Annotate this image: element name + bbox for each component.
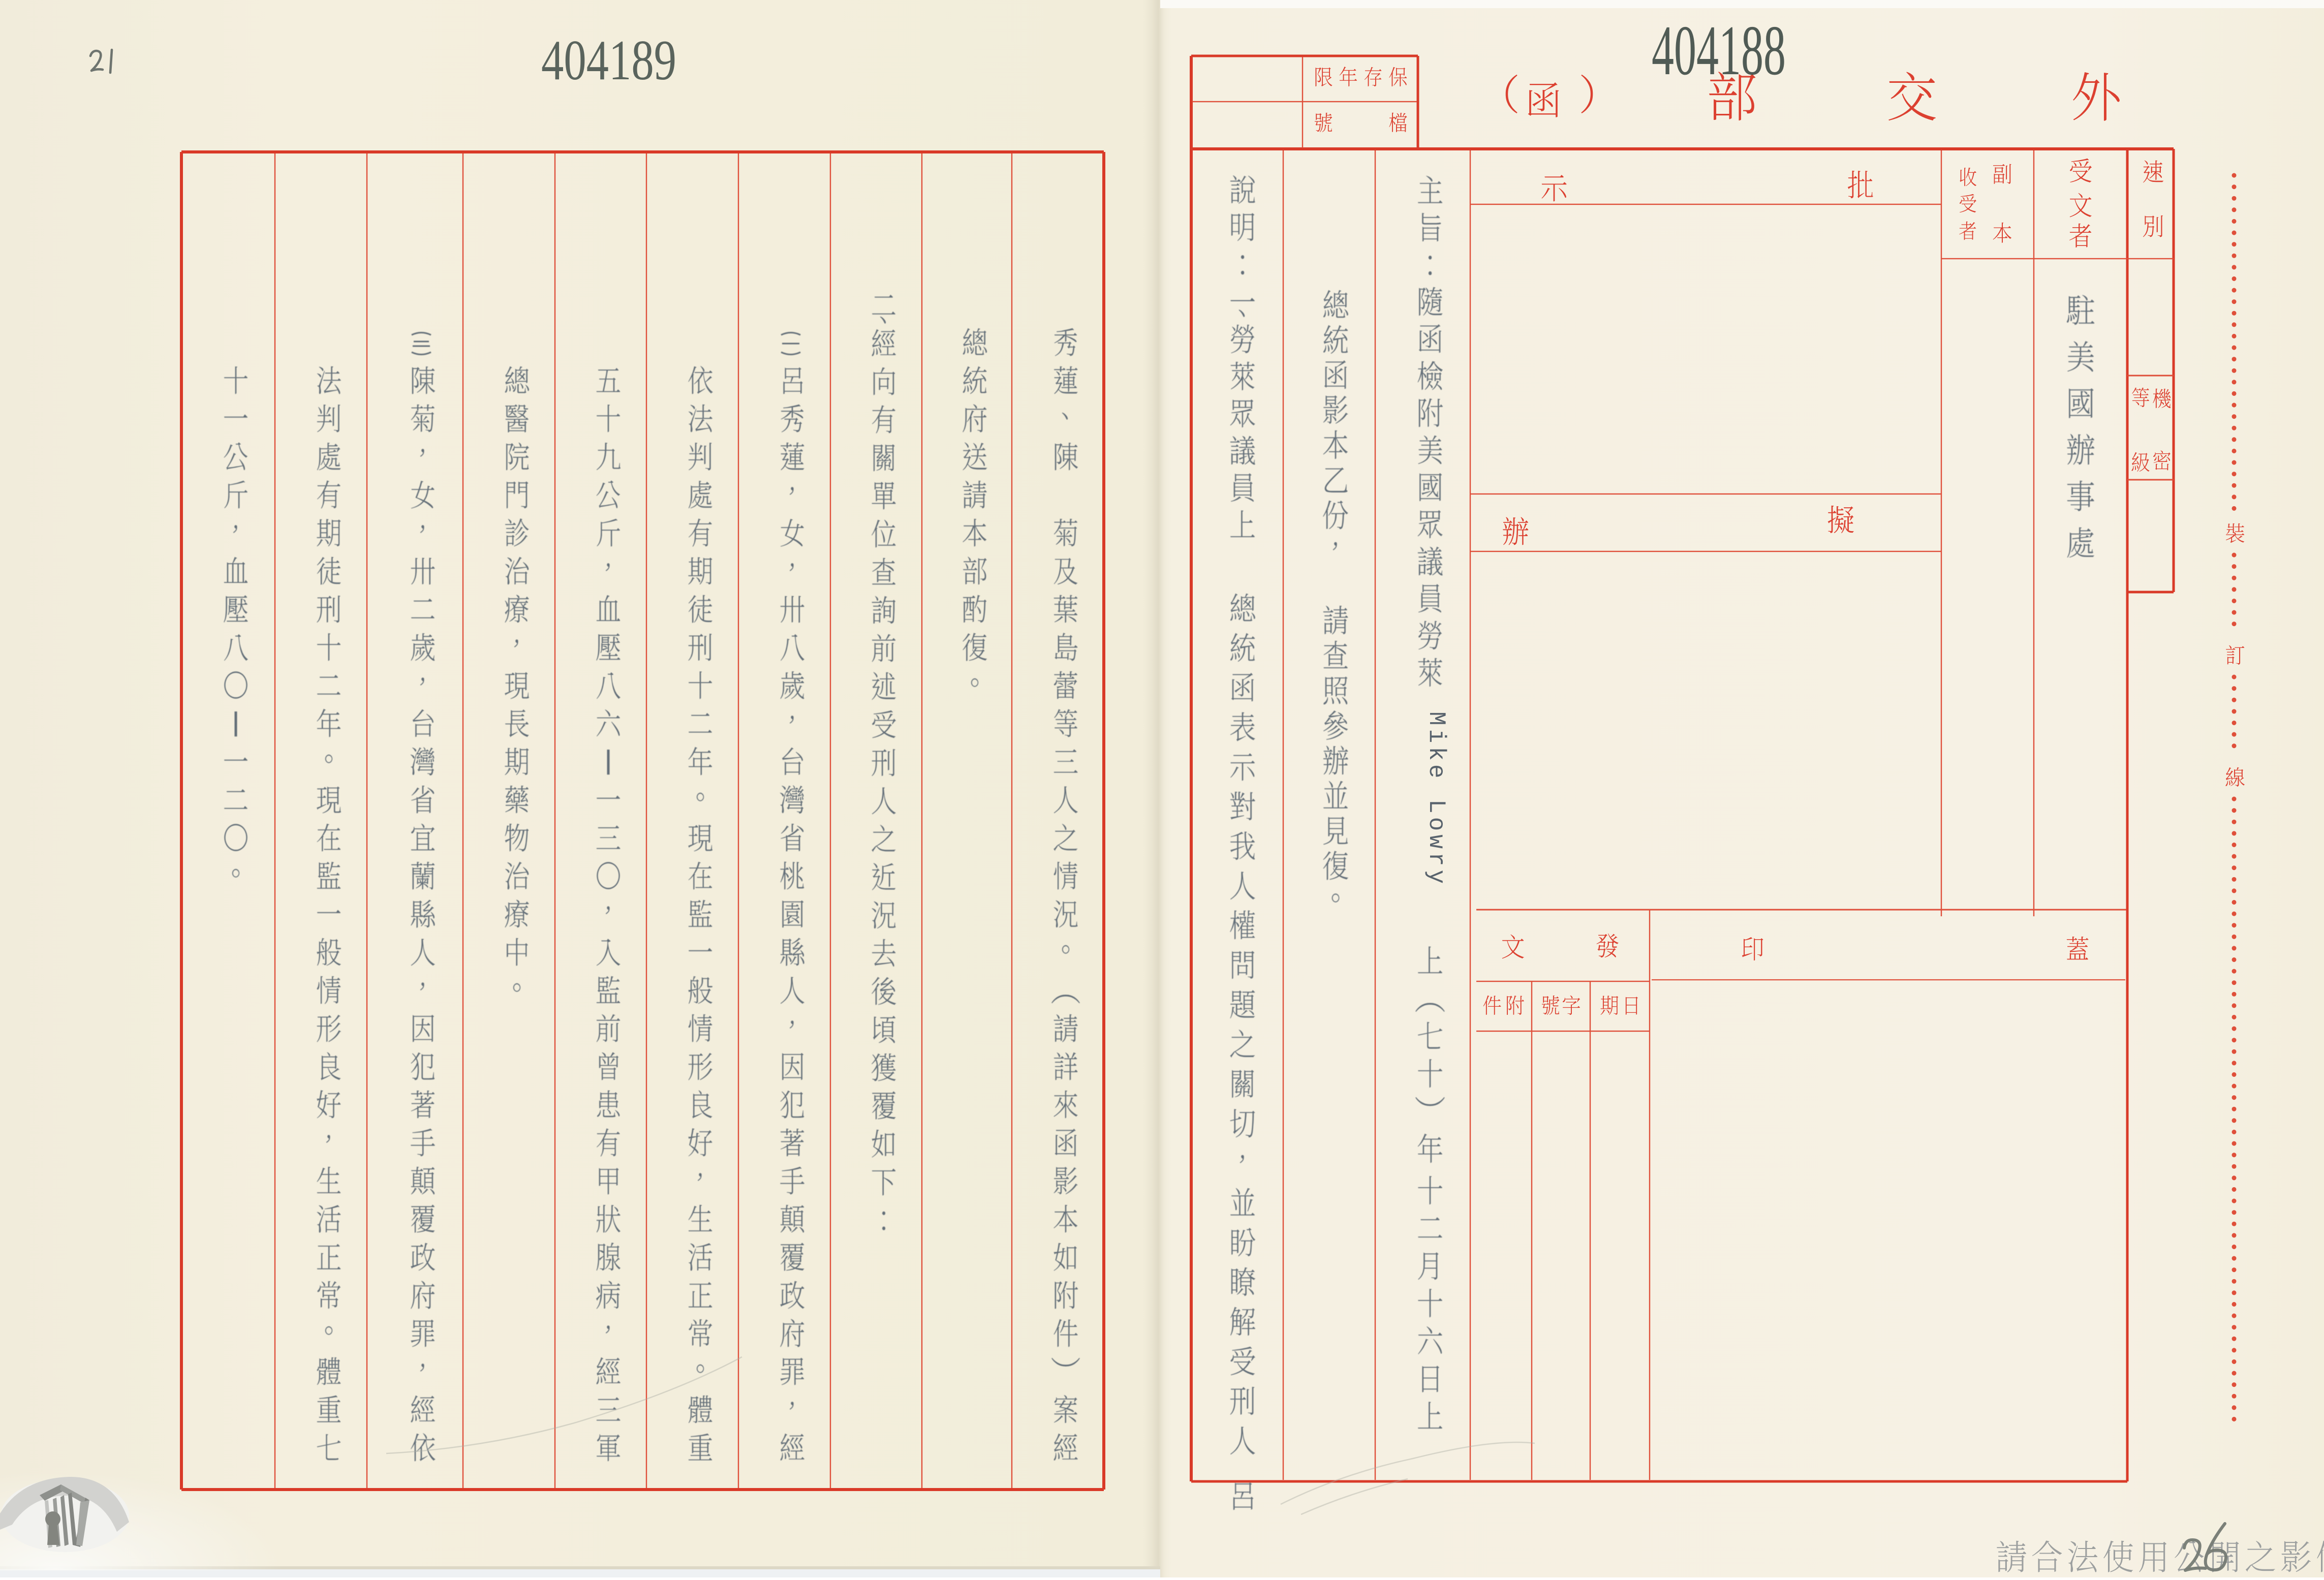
- svg-text:Mike Lowry: Mike Lowry: [1423, 711, 1449, 887]
- svg-text:404189: 404189: [541, 29, 676, 92]
- svg-text:404188: 404188: [1652, 11, 1786, 90]
